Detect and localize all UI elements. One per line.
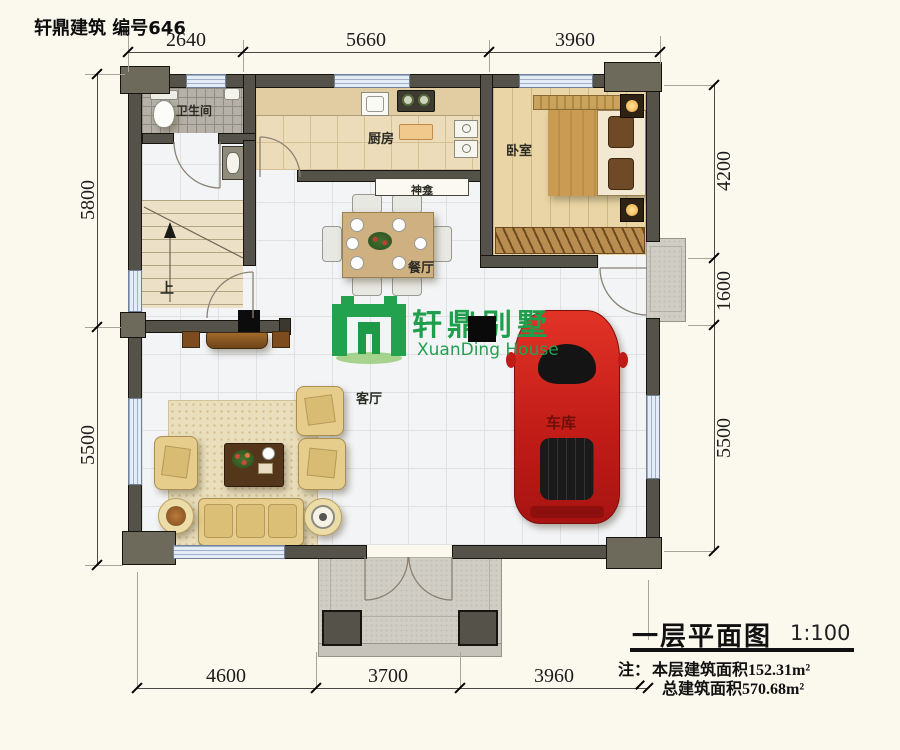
dining-chair-6 bbox=[432, 226, 452, 262]
shrine-label: 神龛 bbox=[411, 184, 433, 197]
wall-bottom-2 bbox=[283, 545, 367, 559]
pillar-mid-left bbox=[120, 312, 146, 338]
plate-1 bbox=[350, 218, 364, 232]
tv-side-table-right bbox=[272, 331, 290, 348]
wall-bathroom-bottom-a bbox=[142, 133, 174, 144]
tv bbox=[238, 310, 260, 332]
wall-bedroom-bottom bbox=[480, 255, 598, 268]
dining-chair-1 bbox=[352, 194, 382, 214]
dining-label: 餐厅 bbox=[408, 257, 434, 276]
page-title: 轩鼎建筑 编号646 bbox=[34, 14, 186, 40]
logo-black-square bbox=[468, 316, 496, 342]
side-porch-inner-line bbox=[650, 246, 682, 312]
stairs-up-label: 上 bbox=[160, 278, 174, 298]
wall-top-3 bbox=[408, 74, 521, 88]
utility-shaft-panel bbox=[226, 152, 240, 174]
bedroom-label: 卧室 bbox=[506, 140, 532, 159]
pillar-bottom-right bbox=[606, 537, 662, 569]
dim-right-5500: 5500 bbox=[714, 398, 734, 478]
plate-6 bbox=[414, 237, 427, 250]
wall-left-1 bbox=[128, 74, 142, 272]
stove-burner-right bbox=[418, 94, 430, 106]
pillar-top-right bbox=[604, 62, 662, 92]
appliance-knob-2 bbox=[462, 144, 471, 153]
car-mirror-right bbox=[618, 352, 628, 368]
tv-cabinet bbox=[206, 332, 268, 349]
window-left-living bbox=[128, 398, 142, 485]
side-table-left-tray bbox=[166, 506, 186, 526]
dim-bottom-3700: 3700 bbox=[348, 666, 428, 686]
plate-4 bbox=[392, 256, 406, 270]
pillar-bottom-left bbox=[122, 531, 176, 565]
coffee-table-flowers bbox=[232, 450, 254, 468]
wardrobe bbox=[495, 227, 645, 254]
dimline-left bbox=[97, 74, 98, 565]
stove-burner-left bbox=[402, 94, 414, 106]
plate-2 bbox=[392, 218, 406, 232]
logo-gate-icon bbox=[330, 292, 408, 366]
bathroom-sink bbox=[224, 88, 240, 100]
logo-icon bbox=[330, 292, 408, 370]
bed-pillow-2 bbox=[608, 158, 634, 190]
porch-column-right bbox=[458, 610, 498, 646]
nightstand-lamp-bottom bbox=[626, 204, 638, 216]
bed-blanket bbox=[548, 110, 598, 196]
appliance-knob-1 bbox=[462, 124, 471, 133]
footer-rule bbox=[630, 648, 854, 652]
nightstand-lamp-top bbox=[626, 100, 638, 112]
dim-left-5500: 5500 bbox=[78, 405, 98, 485]
dim-right-1600: 1600 bbox=[714, 251, 734, 331]
side-table-right-dot bbox=[319, 513, 327, 521]
dimline-bottom bbox=[137, 688, 648, 689]
dining-centerpiece bbox=[368, 232, 392, 250]
note-label: 注： bbox=[618, 656, 650, 680]
sofa-cushion-2 bbox=[236, 504, 265, 538]
kitchen-cutting-board bbox=[399, 124, 433, 140]
shrine-shelf: 神龛 bbox=[375, 178, 469, 196]
toilet-bowl bbox=[153, 100, 175, 128]
armchair-top-right-cushion bbox=[304, 394, 336, 426]
front-porch-inner-line bbox=[330, 557, 490, 617]
dim-top-3960: 3960 bbox=[535, 30, 615, 50]
dim-bottom-4600: 4600 bbox=[186, 666, 266, 686]
bathroom-label: 卫生间 bbox=[176, 102, 212, 119]
wall-top-2 bbox=[224, 74, 336, 88]
dimline-top bbox=[128, 52, 660, 53]
window-top-bedroom bbox=[519, 74, 593, 88]
wall-stair-right bbox=[243, 140, 256, 266]
note-line2: 总建筑面积570.68m² bbox=[662, 675, 804, 699]
dim-left-5800: 5800 bbox=[78, 160, 98, 240]
wall-bedroom-left bbox=[480, 74, 493, 259]
armchair-right-cushion bbox=[307, 448, 338, 479]
coffee-table-book bbox=[258, 463, 273, 474]
window-bottom-living bbox=[173, 545, 285, 559]
coffee-table bbox=[224, 443, 284, 487]
dim-top-5660: 5660 bbox=[326, 30, 406, 50]
window-left-stair bbox=[128, 270, 142, 312]
plan-scale: 1:100 bbox=[790, 621, 851, 645]
tv-side-table-left bbox=[182, 331, 200, 348]
window-top-kitchen bbox=[334, 74, 410, 88]
kitchen-label: 厨房 bbox=[368, 128, 394, 147]
kitchen-sink-basin bbox=[366, 96, 384, 112]
logo-english-text: XuanDing House bbox=[417, 340, 559, 360]
sofa-cushion-1 bbox=[204, 504, 233, 538]
garage-label: 车库 bbox=[546, 412, 576, 433]
porch-column-left bbox=[322, 610, 362, 646]
living-label: 客厅 bbox=[356, 388, 382, 407]
window-right-garage bbox=[646, 395, 660, 479]
armchair-left-cushion bbox=[161, 445, 191, 478]
dim-bottom-3960: 3960 bbox=[514, 666, 594, 686]
sofa-cushion-3 bbox=[268, 504, 297, 538]
wall-right-1 bbox=[646, 74, 660, 242]
car-tail bbox=[530, 506, 604, 518]
plate-3 bbox=[350, 256, 364, 270]
car-engine-cover bbox=[540, 438, 594, 500]
bed-pillow-1 bbox=[608, 116, 634, 148]
plate-5 bbox=[346, 237, 359, 250]
stairs bbox=[142, 200, 243, 308]
wall-right-2 bbox=[646, 318, 660, 397]
dim-right-4200: 4200 bbox=[714, 131, 734, 211]
window-top-bathroom bbox=[186, 74, 226, 88]
floorplan-canvas: 轩鼎建筑 编号646 bbox=[0, 0, 900, 750]
coffee-table-plate bbox=[262, 447, 275, 460]
dining-chair-5 bbox=[322, 226, 342, 262]
